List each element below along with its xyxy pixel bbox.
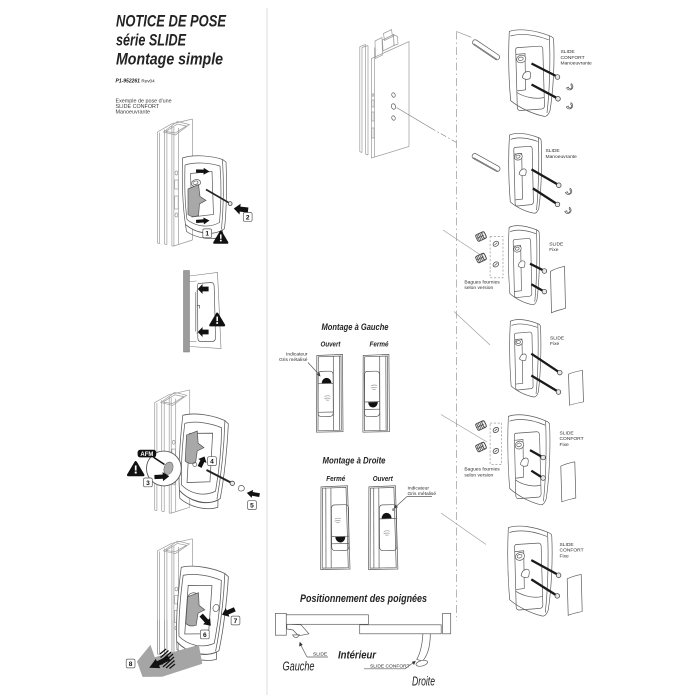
svg-text:6: 6 xyxy=(203,632,207,639)
svg-text:SLIDE: SLIDE xyxy=(549,241,564,247)
svg-text:Positionnement des poignées: Positionnement des poignées xyxy=(300,593,427,605)
svg-text:Fixe: Fixe xyxy=(560,442,570,448)
svg-text:Bagues fournies: Bagues fournies xyxy=(464,279,500,285)
svg-text:SLIDE CONFORT: SLIDE CONFORT xyxy=(370,663,410,669)
svg-text:AFM: AFM xyxy=(140,452,153,458)
svg-text:Manoeuvrante: Manoeuvrante xyxy=(561,61,593,67)
svg-text:Fixe: Fixe xyxy=(549,247,559,253)
svg-text:CONFORT: CONFORT xyxy=(560,436,584,442)
svg-text:Fixe: Fixe xyxy=(560,553,570,559)
svg-text:Gris métalisé: Gris métalisé xyxy=(408,491,437,497)
svg-text:SLIDE: SLIDE xyxy=(560,430,575,436)
svg-text:Montage à Gauche: Montage à Gauche xyxy=(322,322,390,333)
svg-text:Indicateur: Indicateur xyxy=(286,351,308,357)
svg-text:Intérieur: Intérieur xyxy=(338,650,377,662)
svg-text:SLIDE: SLIDE xyxy=(546,148,561,154)
svg-text:Gauche: Gauche xyxy=(283,660,315,674)
svg-text:Fermé: Fermé xyxy=(370,340,389,349)
svg-text:selon version: selon version xyxy=(464,472,493,478)
svg-text:Gris métalisé: Gris métalisé xyxy=(279,357,308,363)
svg-text:Manoeuvrante: Manoeuvrante xyxy=(116,110,150,116)
svg-text:Ouvert: Ouvert xyxy=(321,340,341,349)
svg-text:2: 2 xyxy=(246,214,250,221)
svg-text:SLIDE: SLIDE xyxy=(560,542,575,548)
svg-text:série SLIDE: série SLIDE xyxy=(116,32,187,50)
svg-text:Manoeuvrante: Manoeuvrante xyxy=(546,154,578,160)
svg-text:Montage à Droite: Montage à Droite xyxy=(323,456,387,467)
svg-text:4: 4 xyxy=(210,459,214,466)
svg-text:Indicateur: Indicateur xyxy=(408,485,430,491)
svg-text:Bagues fournies: Bagues fournies xyxy=(464,466,500,472)
svg-text:NOTICE DE POSE: NOTICE DE POSE xyxy=(116,13,227,31)
svg-text:5: 5 xyxy=(250,503,254,510)
svg-text:Droite: Droite xyxy=(412,675,435,689)
svg-text:SLIDE: SLIDE xyxy=(550,335,565,341)
svg-text:1: 1 xyxy=(205,231,209,238)
svg-text:3: 3 xyxy=(146,480,150,487)
svg-text:Fermé: Fermé xyxy=(326,474,345,483)
svg-text:CONFORT: CONFORT xyxy=(561,55,585,61)
svg-text:Ouvert: Ouvert xyxy=(373,474,393,483)
svg-text:selon version: selon version xyxy=(464,285,493,291)
svg-text:CONFORT: CONFORT xyxy=(560,548,584,554)
svg-text:8: 8 xyxy=(129,661,133,668)
svg-text:Fixe: Fixe xyxy=(550,341,560,347)
svg-text:SLIDE: SLIDE xyxy=(561,49,576,55)
svg-text:7: 7 xyxy=(234,618,238,625)
svg-text:Montage simple: Montage simple xyxy=(116,51,223,69)
svg-text:SLIDE: SLIDE xyxy=(313,652,328,658)
